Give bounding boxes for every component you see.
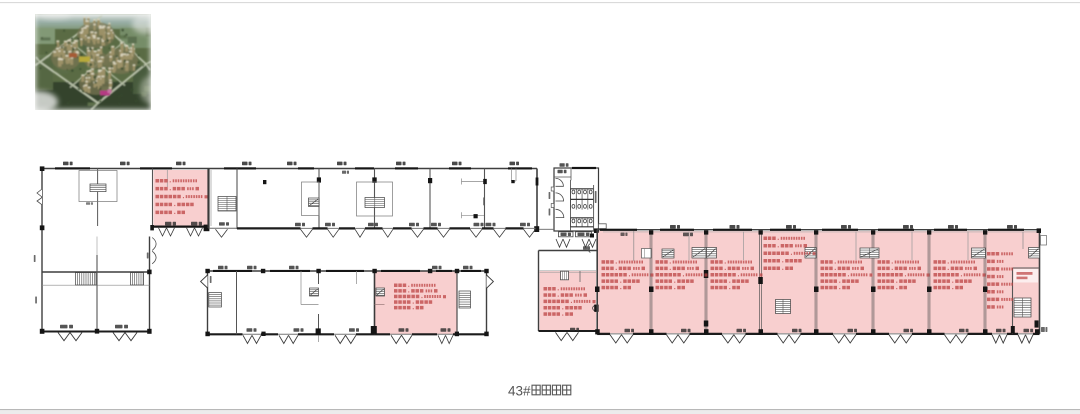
svg-text:43#: 43# xyxy=(508,384,531,399)
